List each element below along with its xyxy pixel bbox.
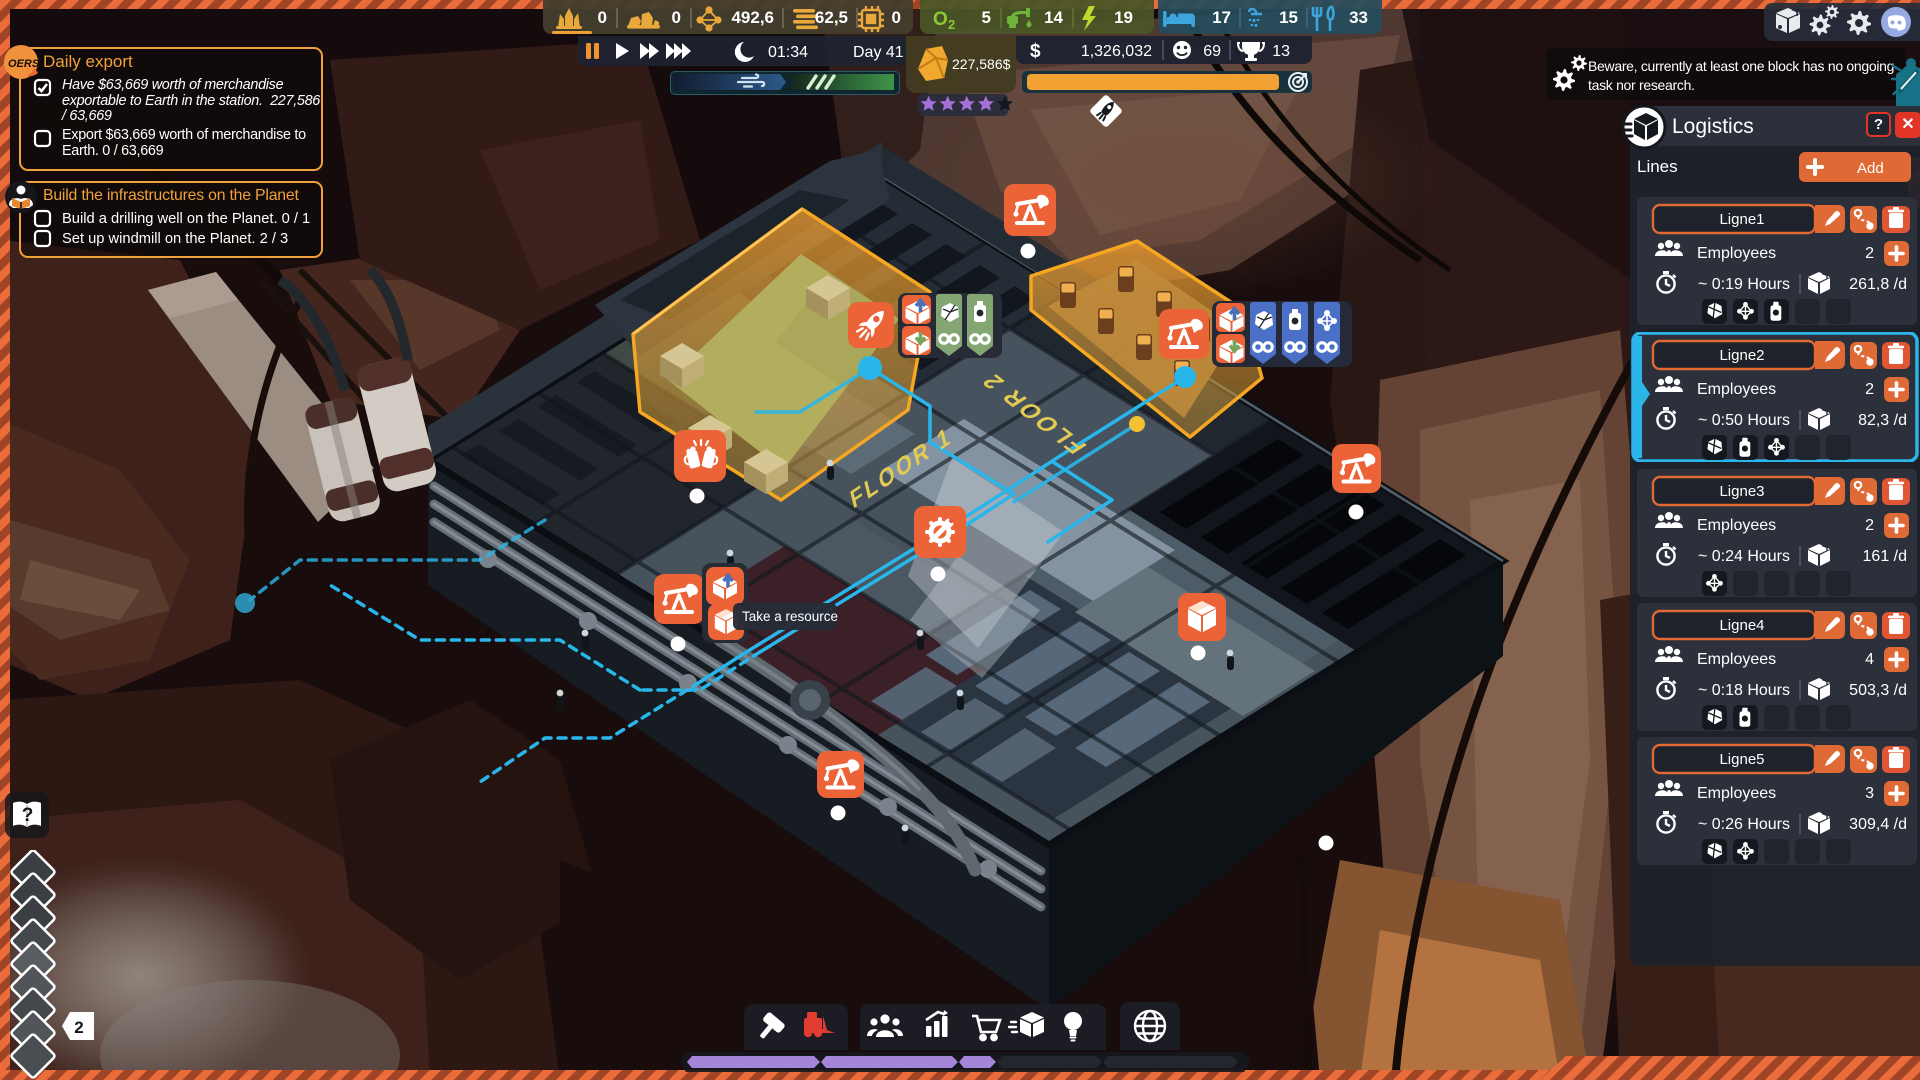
svg-text:Day 41: Day 41 — [853, 44, 904, 61]
svg-text:Ligne2: Ligne2 — [1719, 347, 1764, 364]
svg-text:13: 13 — [1272, 43, 1290, 60]
svg-text:492,6: 492,6 — [731, 8, 774, 27]
svg-text:~ 0:50 Hours: ~ 0:50 Hours — [1698, 412, 1790, 429]
svg-text:2: 2 — [948, 17, 955, 32]
svg-text:Ligne1: Ligne1 — [1719, 211, 1764, 228]
svg-text:Employees: Employees — [1697, 651, 1776, 668]
svg-text:15: 15 — [1279, 8, 1298, 27]
svg-text:Take a resource: Take a resource — [742, 609, 838, 624]
svg-text:5: 5 — [982, 8, 991, 27]
svg-text:0: 0 — [672, 8, 681, 27]
svg-text:1,326,032: 1,326,032 — [1081, 43, 1152, 60]
svg-text:17: 17 — [1212, 8, 1231, 27]
svg-text:0: 0 — [892, 8, 901, 27]
svg-text:O: O — [933, 9, 948, 30]
svg-text:Employees: Employees — [1697, 381, 1776, 398]
svg-text:~ 0:26 Hours: ~ 0:26 Hours — [1698, 816, 1790, 833]
svg-text:Ligne4: Ligne4 — [1719, 617, 1764, 634]
svg-text:2: 2 — [1865, 517, 1874, 534]
svg-text:?: ? — [22, 805, 34, 826]
svg-text:$: $ — [1030, 41, 1041, 62]
svg-text:Add: Add — [1857, 160, 1884, 177]
svg-text:19: 19 — [1114, 8, 1133, 27]
svg-text:Employees: Employees — [1697, 517, 1776, 534]
svg-text:~ 0:18 Hours: ~ 0:18 Hours — [1698, 682, 1790, 699]
svg-text:Ligne5: Ligne5 — [1719, 751, 1764, 768]
svg-text:OERS: OERS — [8, 58, 40, 70]
svg-text:161 /d: 161 /d — [1863, 548, 1907, 565]
svg-text:227,586$: 227,586$ — [952, 56, 1011, 72]
svg-text:Employees: Employees — [1697, 245, 1776, 262]
svg-text:4: 4 — [1865, 651, 1874, 668]
svg-text:3: 3 — [1865, 785, 1874, 802]
svg-text:2: 2 — [1865, 245, 1874, 262]
svg-text:0: 0 — [598, 8, 607, 27]
svg-text:2: 2 — [1865, 381, 1874, 398]
svg-text:2: 2 — [74, 1018, 83, 1037]
svg-text:~ 0:24 Hours: ~ 0:24 Hours — [1698, 548, 1790, 565]
svg-text:33: 33 — [1349, 8, 1368, 27]
svg-text:14: 14 — [1044, 8, 1063, 27]
svg-text:82,3 /d: 82,3 /d — [1858, 412, 1907, 429]
svg-text:261,8 /d: 261,8 /d — [1849, 276, 1907, 293]
svg-text:~ 0:19 Hours: ~ 0:19 Hours — [1698, 276, 1790, 293]
svg-text:Ligne3: Ligne3 — [1719, 483, 1764, 500]
svg-text:62,5: 62,5 — [815, 8, 848, 27]
svg-text:309,4 /d: 309,4 /d — [1849, 816, 1907, 833]
svg-text:69: 69 — [1203, 43, 1221, 60]
svg-text:01:34: 01:34 — [768, 44, 808, 61]
svg-text:Employees: Employees — [1697, 785, 1776, 802]
svg-text:503,3 /d: 503,3 /d — [1849, 682, 1907, 699]
